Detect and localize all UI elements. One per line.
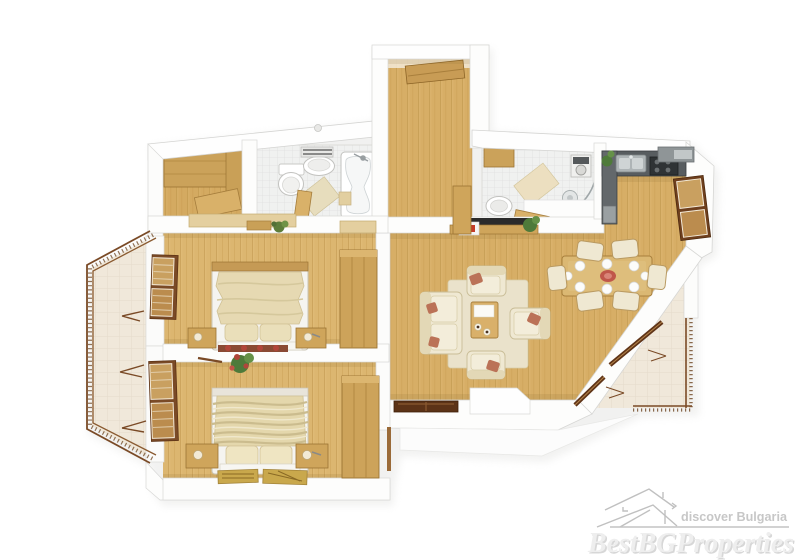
svg-text:BestBGProperties: BestBGProperties	[587, 527, 794, 559]
svg-text:discover Bulgaria: discover Bulgaria	[681, 510, 788, 524]
